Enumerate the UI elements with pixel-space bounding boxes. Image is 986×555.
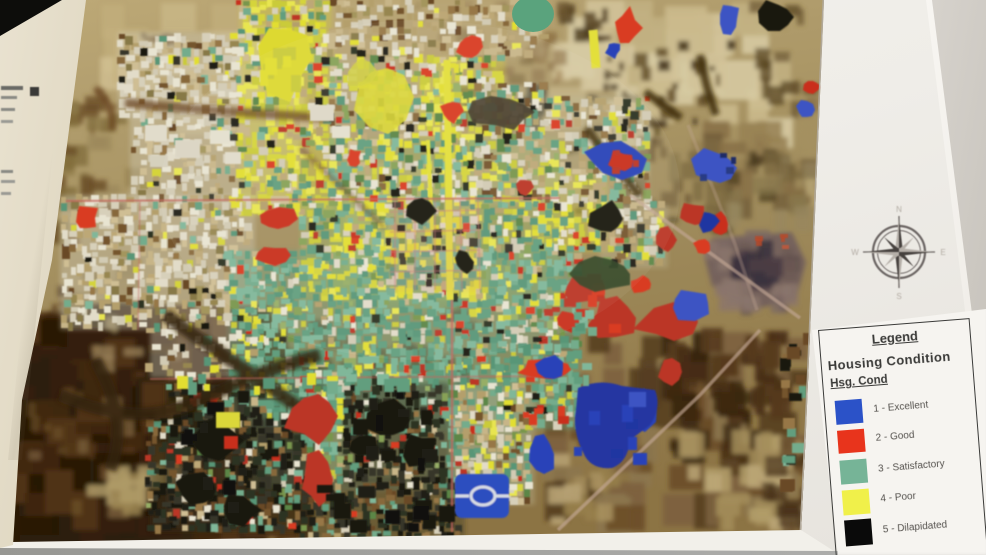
svg-text:E: E [940, 248, 945, 257]
svg-text:W: W [851, 248, 859, 257]
svg-text:N: N [896, 205, 902, 214]
svg-text:S: S [896, 292, 901, 301]
